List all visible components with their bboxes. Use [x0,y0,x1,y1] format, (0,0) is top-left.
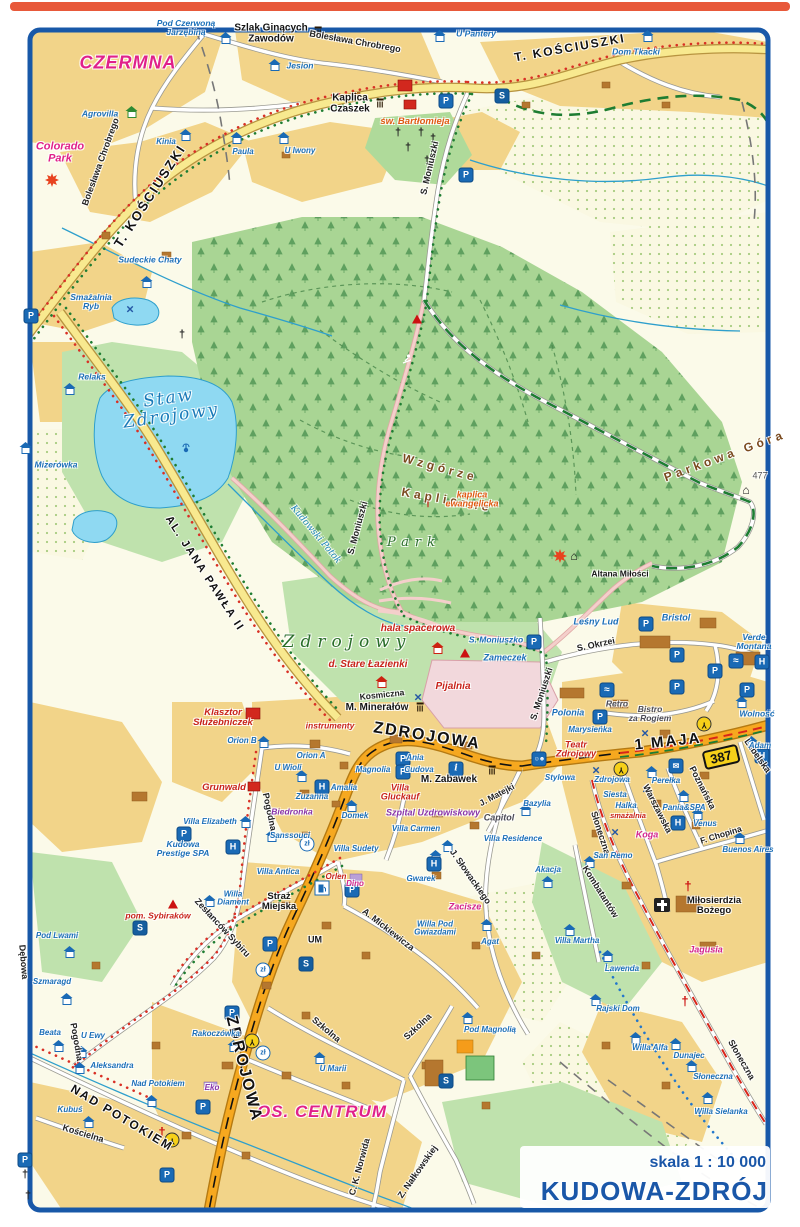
map-title: KUDOWA-ZDRÓJ [541,1178,768,1205]
map-page: PPPPPPPPPPPPPPPPPPPSSSSHHHHHHi✉☺☻IIIIIII… [0,0,800,1227]
map-scale: skala 1 : 10 000 [649,1155,766,1172]
map-base [0,0,800,1227]
